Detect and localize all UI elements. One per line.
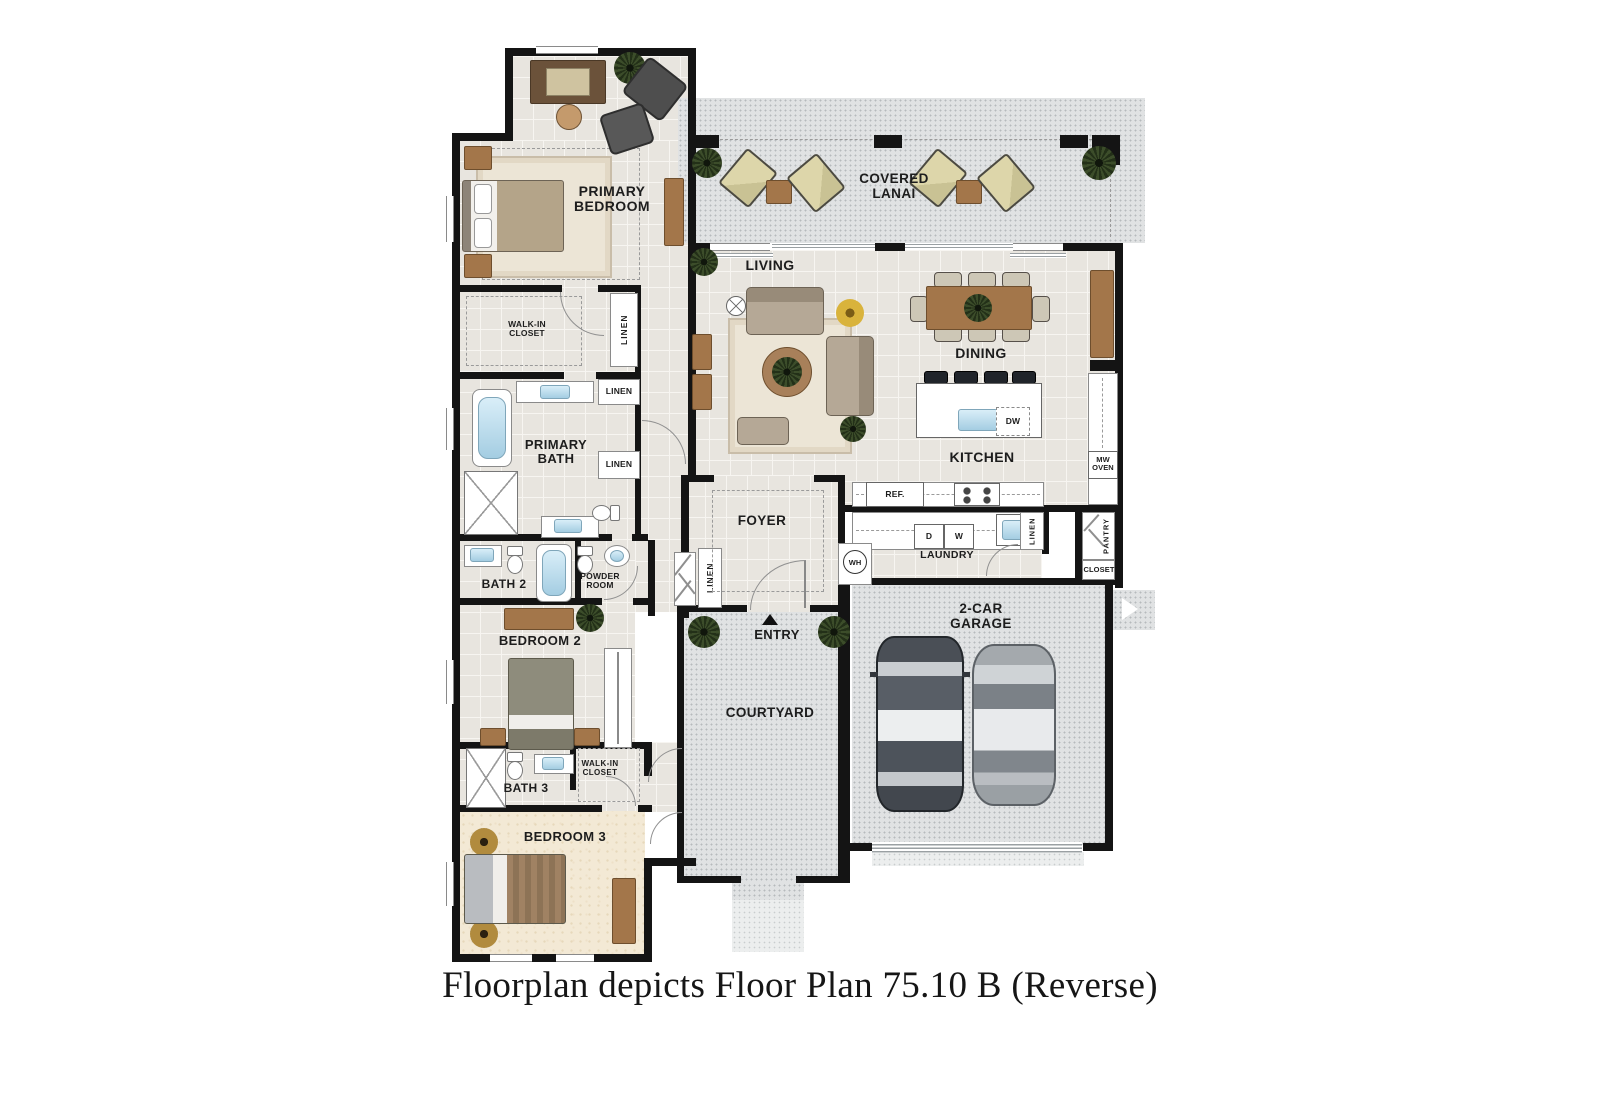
wall-segment bbox=[1105, 585, 1113, 851]
bathtub-basin bbox=[478, 397, 506, 459]
wall-segment bbox=[452, 285, 562, 292]
room-label-living: LIVING bbox=[734, 258, 806, 273]
linen-label: LINEN bbox=[598, 387, 640, 396]
wall-segment bbox=[814, 475, 845, 482]
washer-label: W bbox=[944, 532, 974, 541]
wall-segment bbox=[633, 598, 648, 605]
room-label-walk-in-closet-3: WALK-IN CLOSET bbox=[576, 760, 624, 777]
room-label-primary-bath: PRIMARY BATH bbox=[512, 438, 600, 466]
round-side-table bbox=[836, 299, 864, 327]
wall-segment bbox=[644, 858, 696, 866]
toilet-bowl bbox=[507, 761, 523, 780]
wall-segment bbox=[796, 876, 838, 883]
toilet bbox=[506, 752, 524, 782]
car-mirror bbox=[870, 672, 878, 677]
sink bbox=[542, 757, 564, 770]
window bbox=[1013, 243, 1063, 251]
window bbox=[446, 862, 454, 906]
wall-segment bbox=[596, 372, 641, 379]
side-table bbox=[766, 180, 792, 204]
wall-segment bbox=[505, 48, 696, 56]
shower bbox=[466, 748, 506, 808]
sink bbox=[470, 548, 494, 562]
garage-door bbox=[872, 842, 1082, 853]
window-sill bbox=[1010, 253, 1066, 258]
nightstand bbox=[574, 728, 600, 746]
nightstand bbox=[464, 254, 492, 278]
dishwasher-label: DW bbox=[996, 417, 1030, 426]
wall-segment bbox=[845, 578, 1122, 585]
room-label-dining: DINING bbox=[948, 346, 1014, 361]
plant bbox=[1082, 146, 1116, 180]
plant bbox=[690, 248, 718, 276]
wall-segment bbox=[688, 475, 714, 482]
media-cabinet bbox=[692, 334, 712, 370]
desk-blotter bbox=[546, 68, 590, 96]
oven-cabinet-wall bbox=[1088, 373, 1118, 505]
closet-label: CLOSET bbox=[1080, 566, 1118, 574]
wall-segment bbox=[1063, 243, 1122, 251]
nightstand-round bbox=[470, 920, 498, 948]
room-label-walk-in-closet: WALK-IN CLOSET bbox=[490, 320, 564, 338]
entry-arrow-icon bbox=[762, 614, 778, 625]
sink bbox=[554, 519, 582, 533]
toilet-bowl bbox=[507, 555, 523, 574]
wall-segment bbox=[452, 954, 652, 962]
nightstand-round bbox=[470, 828, 498, 856]
toilet-tank bbox=[610, 505, 620, 521]
car-mirror bbox=[962, 672, 970, 677]
plant bbox=[576, 604, 604, 632]
linen-label: LINEN bbox=[598, 460, 640, 469]
sofa bbox=[746, 287, 824, 335]
dryer-label: D bbox=[914, 532, 944, 541]
plant bbox=[692, 148, 722, 178]
window bbox=[446, 196, 454, 242]
dining-chair bbox=[1032, 296, 1050, 322]
wall-segment bbox=[632, 534, 648, 541]
room-label-bath-2: BATH 2 bbox=[474, 578, 534, 591]
dresser bbox=[504, 608, 574, 630]
sink bbox=[540, 385, 570, 399]
lanai-post bbox=[1060, 135, 1088, 148]
desk-chair bbox=[556, 104, 582, 130]
room-label-foyer: FOYER bbox=[726, 514, 798, 529]
room-label-bedroom-2: BEDROOM 2 bbox=[486, 634, 594, 648]
island-sink bbox=[958, 409, 998, 431]
car-sedan bbox=[972, 644, 1056, 806]
wall-segment bbox=[648, 540, 655, 616]
side-entry-arrow-icon bbox=[1122, 598, 1138, 620]
lanai-post bbox=[874, 135, 902, 148]
media-cabinet bbox=[692, 374, 712, 410]
refrigerator-label: REF. bbox=[866, 490, 924, 499]
car-suv bbox=[876, 636, 964, 812]
closet-rod bbox=[617, 652, 619, 744]
wall-segment bbox=[452, 372, 564, 379]
window bbox=[490, 954, 532, 962]
ceiling-fan-icon bbox=[726, 296, 746, 316]
wall-segment bbox=[644, 858, 652, 958]
wall-segment bbox=[638, 805, 652, 812]
window bbox=[536, 46, 598, 54]
mw-oven-label: MW OVEN bbox=[1086, 456, 1120, 472]
pantry-label: PANTRY bbox=[1094, 512, 1118, 560]
window bbox=[446, 660, 454, 704]
ottoman bbox=[737, 417, 789, 445]
sofa bbox=[826, 336, 874, 416]
plant bbox=[840, 416, 866, 442]
plant bbox=[818, 616, 850, 648]
window bbox=[446, 408, 454, 450]
wall-segment bbox=[598, 285, 641, 292]
room-label-bedroom-3: BEDROOM 3 bbox=[510, 830, 620, 844]
lanai-dashed-edge bbox=[695, 139, 1112, 140]
pillow bbox=[474, 184, 492, 214]
room-label-primary-bedroom: PRIMARY BEDROOM bbox=[566, 184, 658, 214]
wall-segment bbox=[875, 243, 905, 251]
bed-3 bbox=[464, 854, 566, 924]
lanai-post bbox=[693, 135, 719, 148]
floor-courtyard bbox=[684, 612, 838, 883]
floor-walkway bbox=[732, 883, 804, 900]
room-label-garage: 2-CAR GARAGE bbox=[942, 602, 1020, 631]
wall-segment bbox=[677, 876, 741, 883]
linen-label: LINEN bbox=[1020, 512, 1044, 550]
water-heater: WH bbox=[843, 550, 867, 574]
shower bbox=[464, 471, 518, 535]
wall-segment bbox=[1090, 360, 1123, 371]
sliding-door bbox=[772, 244, 875, 249]
dresser bbox=[664, 178, 684, 246]
room-label-courtyard: COURTYARD bbox=[712, 706, 828, 721]
table-centerpiece bbox=[964, 294, 992, 322]
sliding-door bbox=[905, 244, 1013, 249]
dresser bbox=[612, 878, 636, 944]
nightstand bbox=[464, 146, 492, 170]
bed-2 bbox=[508, 658, 574, 750]
nightstand bbox=[480, 728, 506, 746]
door-arc bbox=[650, 812, 682, 844]
floor-walkway-lower bbox=[732, 900, 804, 952]
floor-garage-apron bbox=[872, 852, 1084, 866]
room-label-entry: ENTRY bbox=[742, 628, 812, 642]
side-table bbox=[956, 180, 982, 204]
caption: Floorplan depicts Floor Plan 75.10 B (Re… bbox=[0, 964, 1600, 1007]
plant bbox=[772, 357, 802, 387]
toilet-bowl bbox=[592, 505, 611, 521]
pillow bbox=[474, 218, 492, 248]
wall-segment bbox=[505, 48, 513, 141]
floorplan-canvas: PRIMARY BEDROOM WALK-IN CLOSET LINEN LIN… bbox=[0, 0, 1600, 1093]
plant bbox=[688, 616, 720, 648]
wall-segment bbox=[452, 133, 460, 962]
room-label-kitchen: KITCHEN bbox=[942, 450, 1022, 465]
cabinet-dashed-line bbox=[1102, 378, 1103, 448]
room-label-covered-lanai: COVERED LANAI bbox=[848, 172, 940, 201]
toilet bbox=[590, 504, 620, 522]
room-label-bath-3: BATH 3 bbox=[494, 782, 558, 795]
sink bbox=[610, 550, 624, 562]
buffet-cabinet bbox=[1090, 270, 1114, 358]
linen-label: LINEN bbox=[610, 293, 638, 367]
bathtub-basin bbox=[542, 550, 566, 596]
window bbox=[556, 954, 594, 962]
window bbox=[710, 243, 770, 251]
room-label-laundry: LAUNDRY bbox=[914, 550, 980, 561]
wall-segment bbox=[452, 133, 512, 141]
cooktop bbox=[954, 483, 1000, 506]
wall-segment bbox=[1083, 843, 1113, 851]
toilet bbox=[506, 546, 524, 576]
